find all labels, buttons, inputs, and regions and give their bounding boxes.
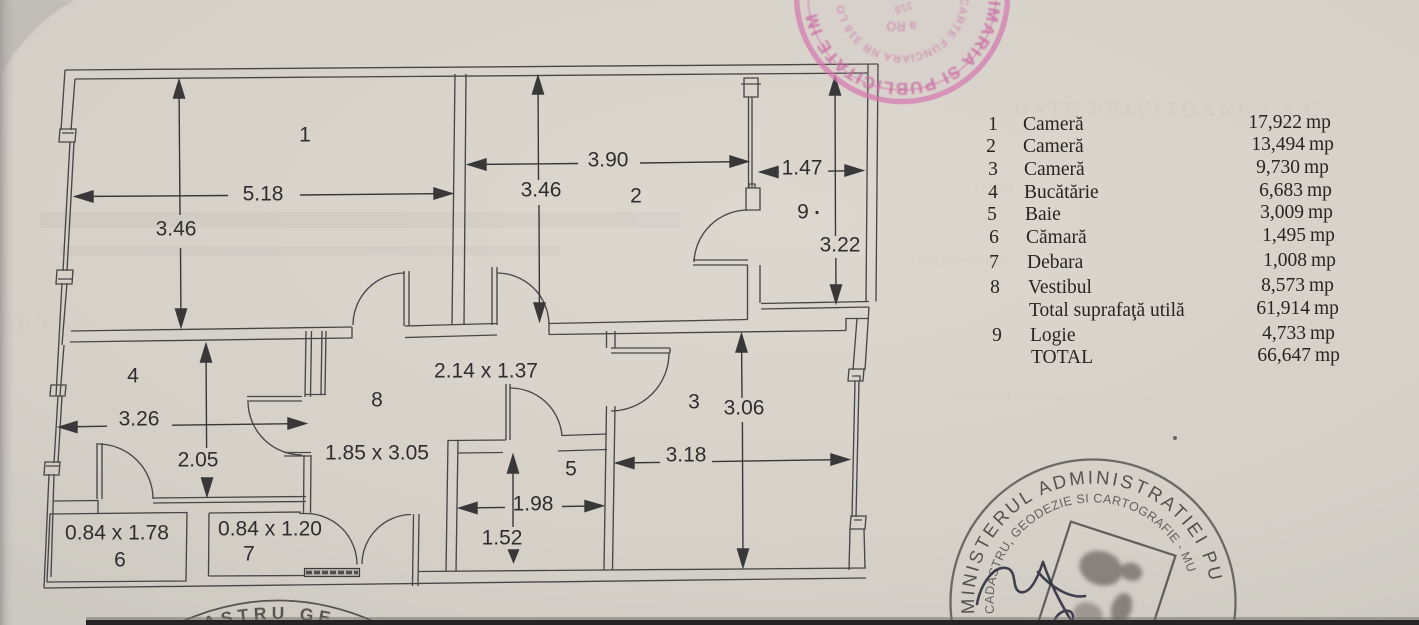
svg-text:Logie: Logie [1030,325,1075,346]
svg-text:pe temeiul cadastrului general: pe temeiul cadastrului general si public… [952,389,1180,404]
svg-text:1.52: 1.52 [482,527,523,550]
svg-text:61,914: 61,914 [1256,298,1310,319]
svg-text:Debara: Debara [1027,252,1084,273]
svg-text:mp: mp [1311,250,1336,271]
svg-text:mp: mp [1304,157,1329,178]
svg-text:0.84 x 1.78: 0.84 x 1.78 [65,522,169,545]
svg-text:66,647: 66,647 [1257,345,1311,366]
svg-text:3.90: 3.90 [588,149,629,172]
svg-text:mp: mp [1308,202,1333,223]
svg-text:Total suprafaţă utilă: Total suprafaţă utilă [1029,300,1185,321]
svg-text:1.47: 1.47 [782,157,823,180]
svg-text:4: 4 [127,365,139,388]
svg-text:4,733: 4,733 [1262,323,1306,344]
svg-text:3: 3 [988,159,998,180]
svg-text:Cameră: Cameră [1023,136,1084,157]
svg-text:8,573: 8,573 [1261,275,1305,296]
svg-text:8: 8 [371,389,383,412]
svg-text:3.06: 3.06 [724,397,765,420]
svg-text:mp: mp [1314,298,1339,319]
svg-text:Cămară: Cămară [1026,227,1087,248]
svg-text:5.18: 5.18 [243,183,284,206]
svg-text:SETA: SETA [0,312,77,338]
svg-text:mp: mp [1307,180,1332,201]
svg-text:a RO: a RO [886,19,917,35]
svg-text:3,009: 3,009 [1260,202,1304,223]
svg-text:1,008: 1,008 [1263,250,1307,271]
svg-text:3: 3 [688,391,700,414]
svg-text:6: 6 [989,227,999,248]
svg-text:1: 1 [988,114,998,135]
svg-text:8: 8 [990,277,1000,298]
svg-text:2.05: 2.05 [178,449,219,472]
svg-text:2.14 x 1.37: 2.14 x 1.37 [434,360,538,383]
svg-text:1: 1 [299,124,311,147]
svg-text:mp: mp [1306,112,1331,133]
svg-text:3.26: 3.26 [119,408,160,431]
svg-text:9: 9 [797,201,809,224]
svg-text:7: 7 [989,252,999,273]
svg-text:2: 2 [630,185,642,208]
svg-text:mp: mp [1309,134,1334,155]
svg-text:Baie: Baie [1025,204,1061,225]
svg-text:9: 9 [992,325,1002,346]
svg-text:mp: mp [1315,345,1340,366]
svg-text:mp: mp [1310,225,1335,246]
svg-text:9,730: 9,730 [1256,157,1300,178]
svg-text:4: 4 [988,182,998,203]
svg-text:17,922: 17,922 [1248,112,1302,133]
svg-text:2: 2 [986,136,996,157]
svg-text:Bucătărie: Bucătărie [1024,182,1099,203]
svg-text:Cameră: Cameră [1023,114,1084,135]
svg-text:3.22: 3.22 [820,234,861,257]
svg-text:mp: mp [1310,323,1335,344]
svg-text:5: 5 [565,458,577,481]
svg-text:0.84 x 1.20: 0.84 x 1.20 [218,518,322,541]
svg-text:3.18: 3.18 [666,444,707,467]
svg-text:5: 5 [987,204,997,225]
svg-text:6: 6 [114,549,126,572]
svg-text:3.46: 3.46 [521,179,562,202]
svg-text:Cameră: Cameră [1024,159,1085,180]
svg-text:1,495: 1,495 [1262,225,1306,246]
svg-text:13,494: 13,494 [1251,134,1305,155]
svg-text:6,683: 6,683 [1259,180,1303,201]
svg-text:TOTAL: TOTAL [1031,347,1093,368]
svg-text:Vestibul: Vestibul [1028,277,1093,298]
svg-text:mp: mp [1309,275,1334,296]
svg-text:1.85 x 3.05: 1.85 x 3.05 [325,442,429,465]
svg-text:7: 7 [243,543,255,566]
svg-text:3.46: 3.46 [156,218,197,241]
svg-text:1.98: 1.98 [513,493,554,516]
